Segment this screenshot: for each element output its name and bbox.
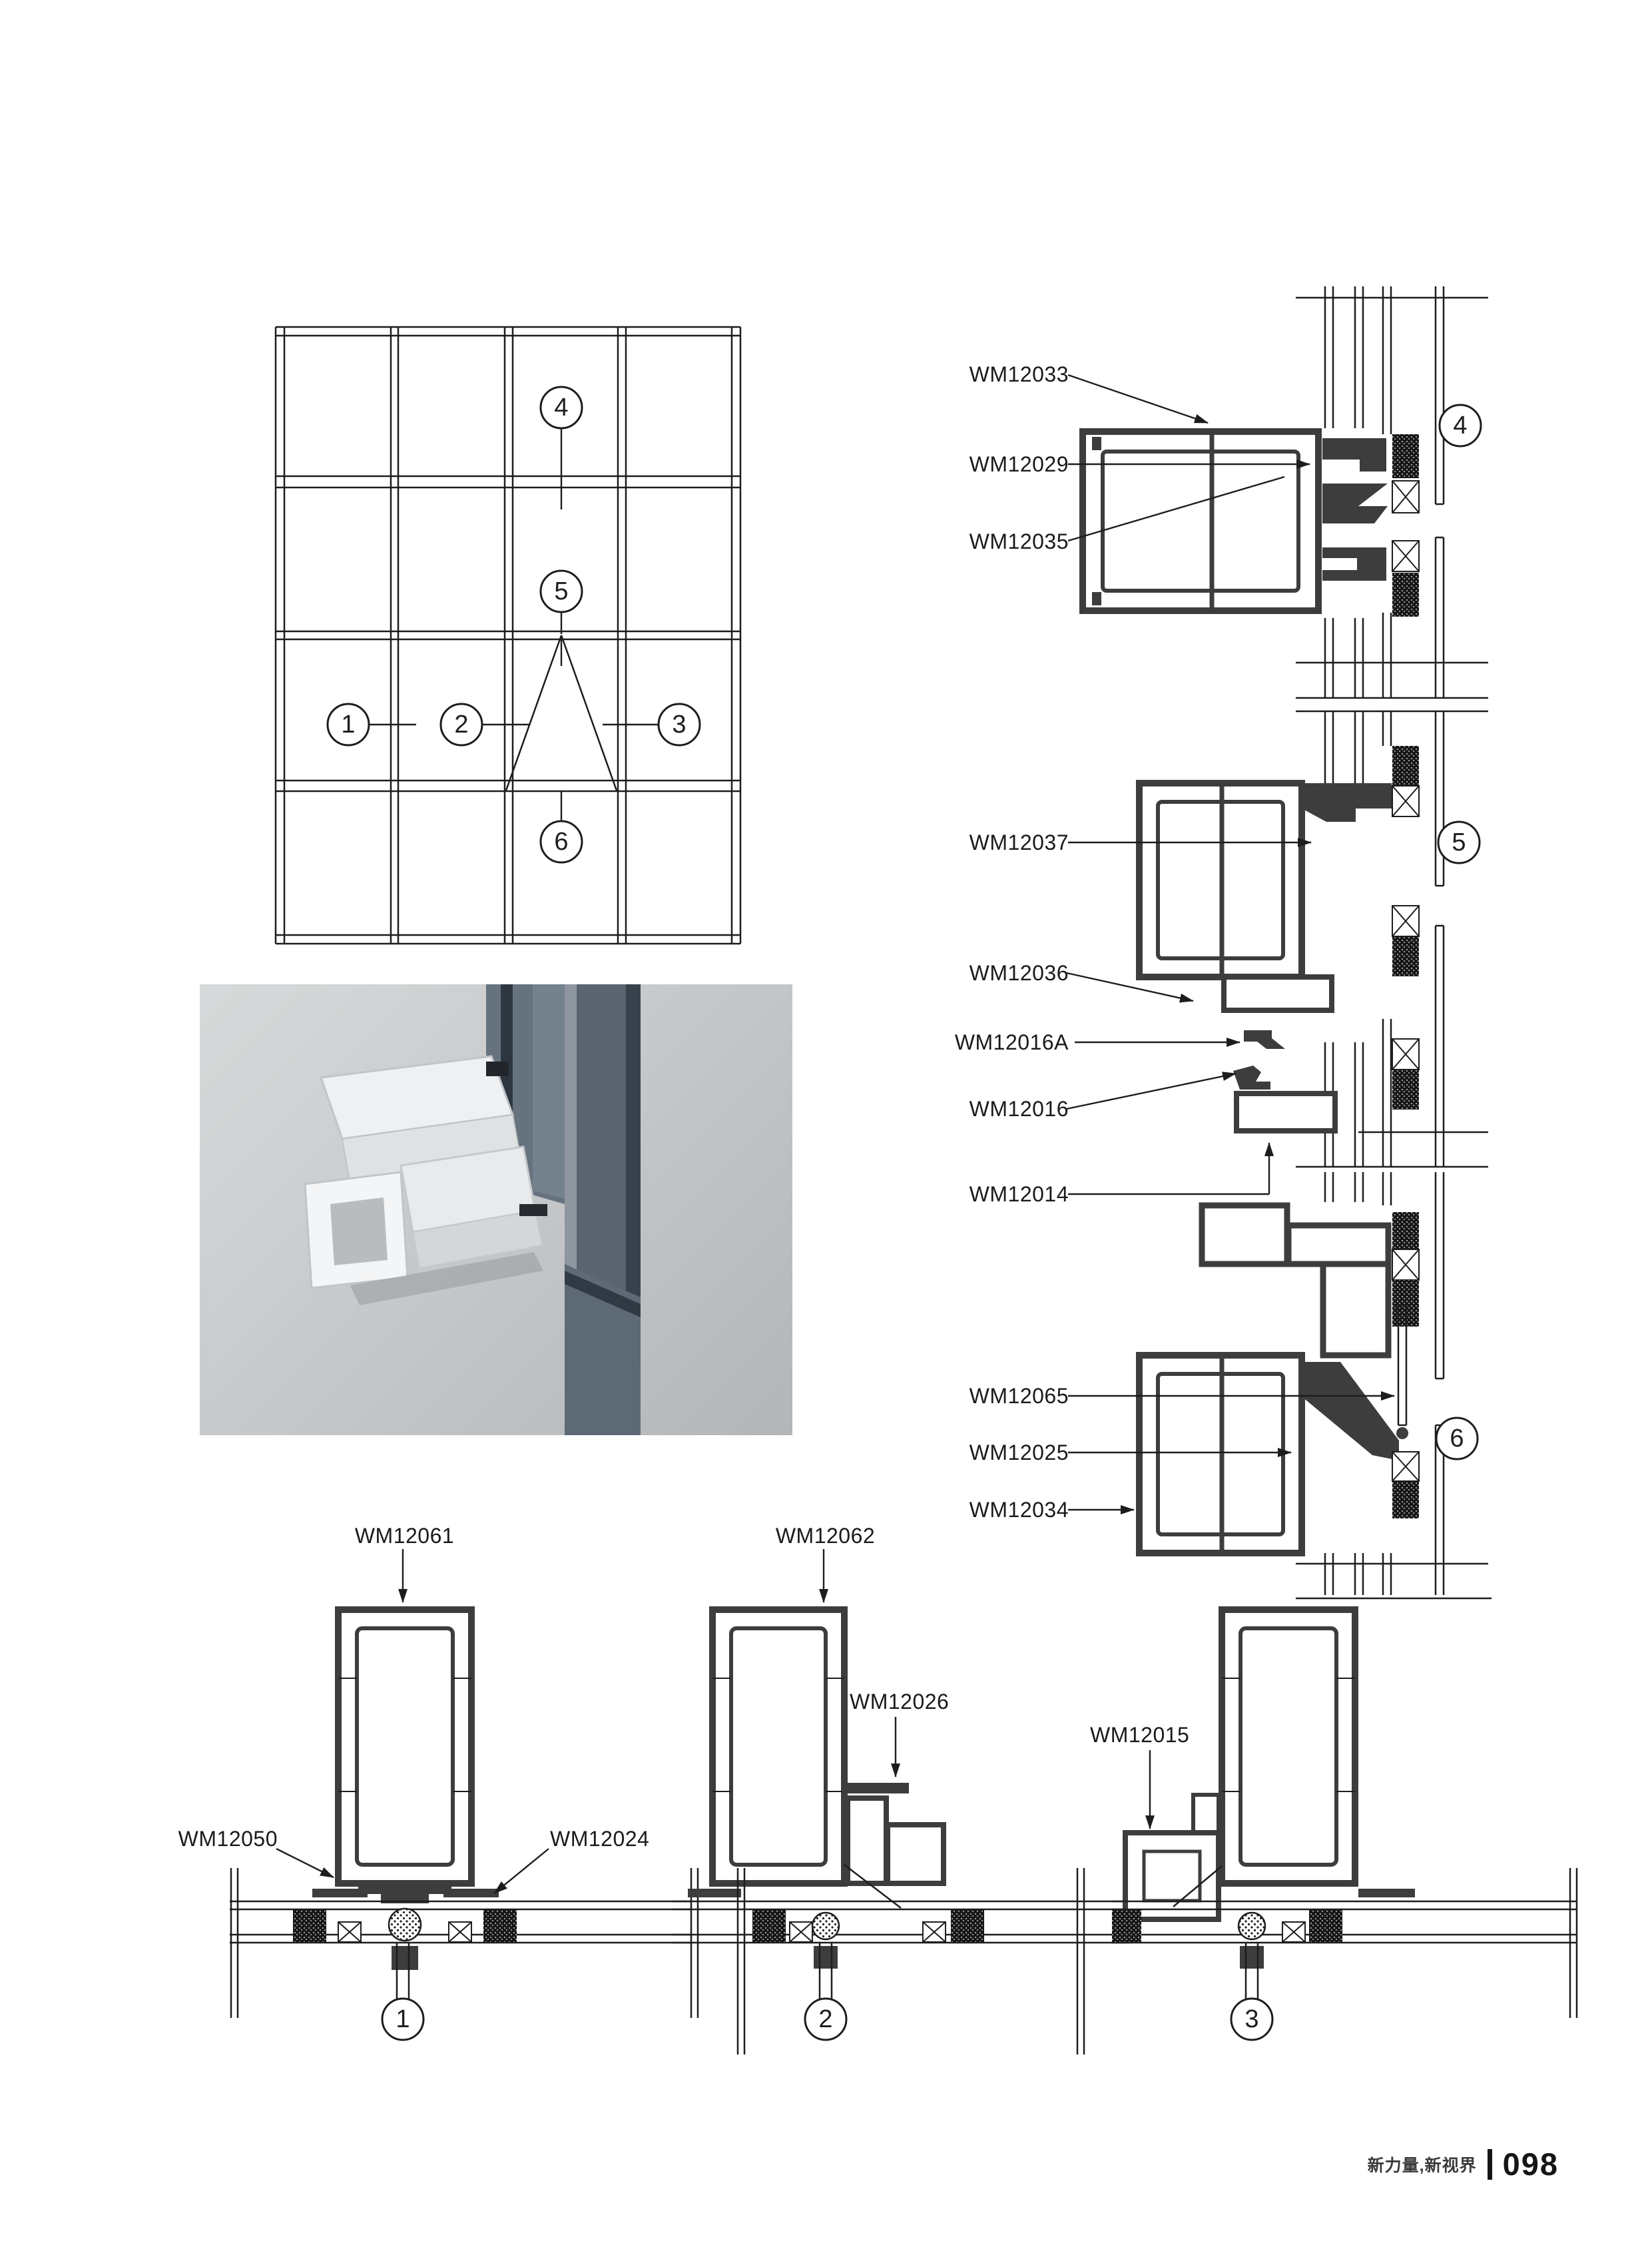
svg-text:4: 4: [554, 394, 568, 422]
svg-text:4: 4: [1453, 412, 1467, 440]
plan-circle-1: 1: [382, 1999, 423, 2040]
plan-detail-3: 3: [1112, 1610, 1577, 2040]
svg-text:5: 5: [554, 577, 568, 605]
part-label-wm12025: WM12025: [926, 1442, 1069, 1464]
elevation-drawing: 4 5 1 2 3 6: [253, 293, 759, 986]
callout-circle-4: 4: [541, 387, 582, 428]
part-label-wm12034: WM12034: [926, 1499, 1069, 1522]
detail-circle-4: 4: [1440, 405, 1481, 446]
callout-circle-1: 1: [328, 704, 369, 745]
product-photo: [200, 984, 792, 1435]
callout-circle-5: 5: [541, 571, 582, 612]
callout-circle-3: 3: [659, 704, 700, 745]
svg-text:6: 6: [1450, 1425, 1464, 1452]
svg-text:3: 3: [1244, 2005, 1258, 2033]
svg-text:2: 2: [454, 711, 468, 739]
part-label-wm12061: WM12061: [333, 1525, 476, 1548]
part-label-wm12036: WM12036: [926, 962, 1069, 985]
footer-divider: [1488, 2149, 1492, 2180]
interlock-profiles: [1322, 434, 1419, 617]
part-label-wm12014: WM12014: [926, 1183, 1069, 1206]
plan-detail-1: 1: [230, 1549, 698, 2040]
photo-render: [200, 984, 792, 1435]
page-number: 098: [1503, 2146, 1559, 2182]
footer-tagline: 新力量,新视界: [1368, 2152, 1477, 2176]
part-label-wm12035: WM12035: [926, 531, 1069, 553]
detail-circle-6: 6: [1436, 1418, 1478, 1459]
svg-text:1: 1: [341, 711, 355, 739]
part-label-wm12026: WM12026: [850, 1691, 993, 1714]
svg-text:3: 3: [672, 711, 686, 739]
glass-panel-edge: [1392, 1305, 1419, 1518]
callout-circle-6: 6: [541, 821, 582, 862]
plan-details-row: 1 2: [93, 1512, 1618, 2058]
part-label-wm12016a: WM12016A: [926, 1032, 1069, 1054]
page-footer: 新力量,新视界 098: [1368, 2146, 1559, 2182]
part-label-wm12015: WM12015: [1090, 1724, 1233, 1747]
mullion-box-profile: [1083, 432, 1318, 611]
svg-text:6: 6: [554, 828, 568, 856]
part-label-wm12016: WM12016: [926, 1098, 1069, 1121]
svg-text:2: 2: [818, 2005, 832, 2033]
section-detail-4: 4: [926, 286, 1498, 726]
head-frame-profiles: [1202, 1205, 1419, 1355]
part-label-wm12050: WM12050: [135, 1828, 278, 1851]
callout-circle-2: 2: [441, 704, 482, 745]
part-label-wm12065: WM12065: [926, 1385, 1069, 1408]
elevation-grid: [276, 327, 740, 944]
part-label-wm12037: WM12037: [926, 832, 1069, 854]
part-label-wm12029: WM12029: [926, 454, 1069, 476]
part-label-wm12033: WM12033: [926, 364, 1069, 386]
plan-circle-2: 2: [805, 1999, 846, 2040]
svg-text:1: 1: [396, 2005, 410, 2033]
plan-detail-2: 2: [673, 1549, 1131, 2055]
detail-circle-5: 5: [1438, 822, 1480, 863]
catalog-page: 4 5 1 2 3 6: [0, 0, 1652, 2241]
svg-text:5: 5: [1452, 828, 1466, 856]
part-label-wm12024: WM12024: [550, 1828, 693, 1851]
part-label-wm12062: WM12062: [754, 1525, 897, 1548]
plan-circle-3: 3: [1231, 1999, 1272, 2040]
frame-box-profile: [1139, 783, 1392, 977]
